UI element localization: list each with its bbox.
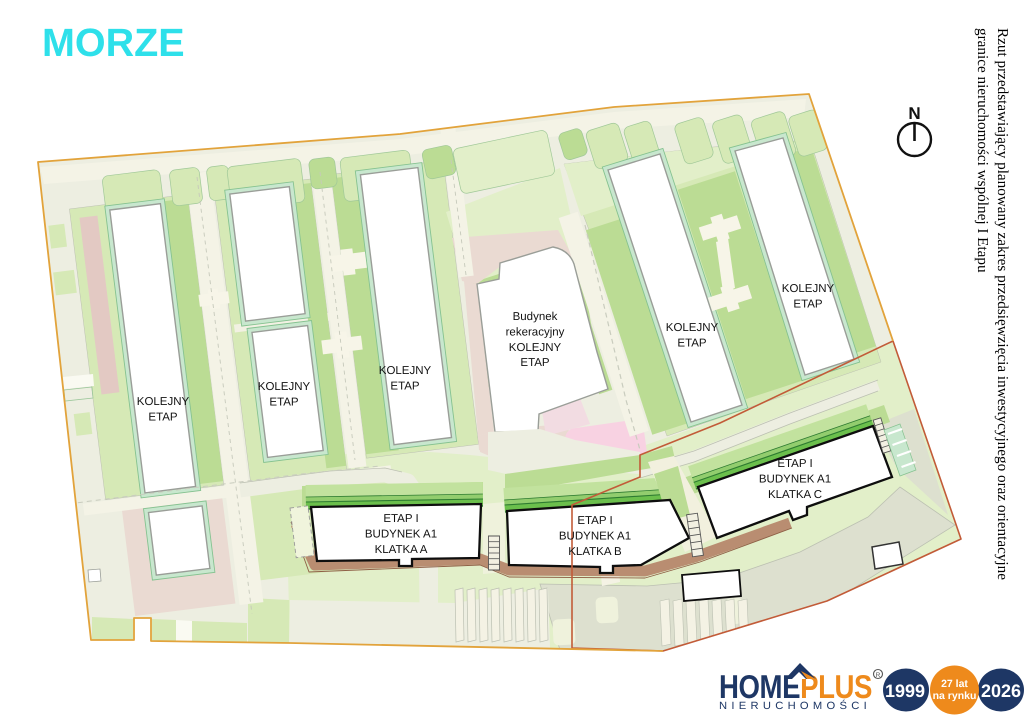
svg-text:KLATKA B: KLATKA B xyxy=(568,546,622,558)
svg-text:KLATKA A: KLATKA A xyxy=(375,544,428,556)
svg-text:rekeracyjny: rekeracyjny xyxy=(506,326,565,338)
svg-text:1999: 1999 xyxy=(885,681,925,701)
svg-text:Rzut przedstawiający planowany: Rzut przedstawiający planowany zakres pr… xyxy=(994,28,1011,580)
svg-text:KOLEJNY: KOLEJNY xyxy=(782,283,835,295)
svg-text:KOLEJNY: KOLEJNY xyxy=(258,381,311,393)
svg-text:ETAP: ETAP xyxy=(520,357,550,369)
svg-text:BUDYNEK A1: BUDYNEK A1 xyxy=(759,474,831,486)
svg-text:MORZE: MORZE xyxy=(42,21,185,65)
svg-text:ETAP I: ETAP I xyxy=(777,458,812,470)
svg-text:BUDYNEK A1: BUDYNEK A1 xyxy=(559,531,631,543)
svg-text:KOLEJNY: KOLEJNY xyxy=(137,396,190,408)
svg-text:ETAP: ETAP xyxy=(390,381,420,393)
svg-text:ETAP: ETAP xyxy=(269,397,299,409)
svg-text:BUDYNEK A1: BUDYNEK A1 xyxy=(365,529,437,541)
svg-text:2026: 2026 xyxy=(981,681,1021,701)
svg-text:granice nieruchomości wspólnej: granice nieruchomości wspólnej I Etapu xyxy=(974,28,991,273)
svg-text:ETAP I: ETAP I xyxy=(577,515,612,527)
svg-text:KOLEJNY: KOLEJNY xyxy=(666,322,719,334)
svg-text:KOLEJNY: KOLEJNY xyxy=(509,342,562,354)
svg-text:KOLEJNY: KOLEJNY xyxy=(379,365,432,377)
svg-text:R: R xyxy=(876,672,881,679)
svg-text:KLATKA C: KLATKA C xyxy=(768,489,822,501)
svg-text:ETAP I: ETAP I xyxy=(383,513,418,525)
svg-text:NIERUCHOMOŚCI: NIERUCHOMOŚCI xyxy=(719,699,871,712)
svg-text:ETAP: ETAP xyxy=(793,299,823,311)
svg-text:N: N xyxy=(908,104,920,123)
svg-text:ETAP: ETAP xyxy=(148,412,178,424)
svg-text:Budynek: Budynek xyxy=(513,311,558,323)
svg-text:ETAP: ETAP xyxy=(677,338,707,350)
svg-text:27 lat: 27 lat xyxy=(941,678,968,690)
svg-text:na rynku: na rynku xyxy=(933,690,977,702)
